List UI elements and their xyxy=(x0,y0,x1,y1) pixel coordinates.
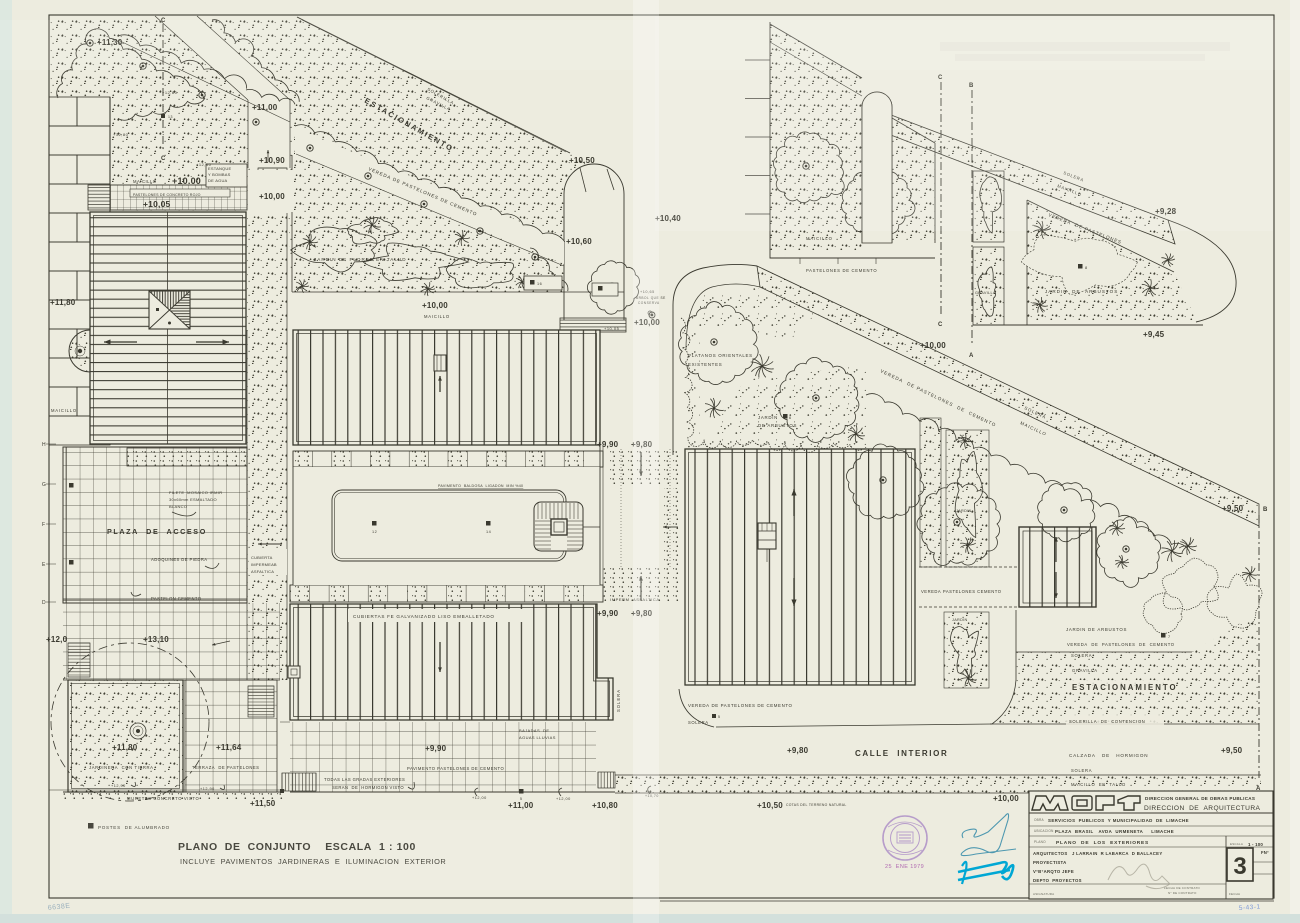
svg-text:16: 16 xyxy=(537,282,542,286)
svg-text:+12,80: +12,80 xyxy=(196,162,212,167)
svg-text:FECHA DE CONTRATO: FECHA DE CONTRATO xyxy=(1164,886,1200,890)
svg-text:SOLERA: SOLERA xyxy=(688,720,709,725)
svg-text:5: 5 xyxy=(520,797,522,801)
svg-text:MAICILLO: MAICILLO xyxy=(133,179,157,184)
svg-text:PLATANOS ORIENTALES: PLATANOS ORIENTALES xyxy=(688,353,753,358)
svg-text:+12,90: +12,90 xyxy=(111,784,126,788)
svg-text:MAICILLO: MAICILLO xyxy=(424,314,450,319)
svg-text:F: F xyxy=(42,522,45,528)
svg-text:+10,05: +10,05 xyxy=(143,199,171,209)
svg-text:G: G xyxy=(42,482,46,488)
svg-text:30x60mm ESMALTADO: 30x60mm ESMALTADO xyxy=(169,497,217,502)
svg-text:3: 3 xyxy=(1233,853,1246,880)
svg-text:+11,00: +11,00 xyxy=(508,801,534,810)
svg-text:+11,80: +11,80 xyxy=(50,298,76,307)
svg-text:+9,80: +9,80 xyxy=(787,746,809,755)
svg-text:SOLERA: SOLERA xyxy=(1071,768,1092,773)
svg-text:+13,10: +13,10 xyxy=(143,635,169,644)
svg-text:IMPERMEAB: IMPERMEAB xyxy=(251,562,277,567)
svg-text:ARQUITECTOS J LARRAIN R LAB: ARQUITECTOS J LARRAIN R LABARCA D BALLAC… xyxy=(1033,851,1163,856)
svg-text:25 ENE 1979: 25 ENE 1979 xyxy=(885,864,924,870)
svg-text:Y BOMBAS: Y BOMBAS xyxy=(208,172,231,177)
svg-text:EXISTENTES: EXISTENTES xyxy=(688,362,722,367)
svg-text:JARDIN: JARDIN xyxy=(758,415,778,420)
svg-text:JARDIN DE FLORES EN TALUD: JARDIN DE FLORES EN TALUD xyxy=(314,257,407,262)
svg-text:PAVIMENTO PASTELONES DE CEMENT: PAVIMENTO PASTELONES DE CEMENTO xyxy=(407,766,504,771)
svg-text:BAJADAS DE: BAJADAS DE xyxy=(519,728,549,733)
svg-text:+12,80: +12,80 xyxy=(113,132,129,137)
svg-text:+11,50: +11,50 xyxy=(250,799,276,808)
svg-text:+12,0: +12,0 xyxy=(46,635,68,644)
svg-text:PLAZA BRASIL AVDA URMENETA: PLAZA BRASIL AVDA URMENETA LIMACHE xyxy=(1055,829,1174,834)
svg-text:ESCALA: ESCALA xyxy=(1230,842,1243,846)
svg-text:SOLERA: SOLERA xyxy=(616,689,621,712)
svg-text:TERRAZA DE PASTELONES: TERRAZA DE PASTELONES xyxy=(192,765,259,770)
svg-text:C: C xyxy=(938,322,943,328)
svg-text:+12,00: +12,00 xyxy=(556,797,571,801)
svg-text:D: D xyxy=(42,600,46,606)
svg-text:SOLERA: SOLERA xyxy=(1071,653,1092,658)
svg-text:SERAN DE HORMIGON VISTO: SERAN DE HORMIGON VISTO xyxy=(332,785,404,790)
svg-text:+10,80: +10,80 xyxy=(592,801,618,810)
svg-text:BLANCO: BLANCO xyxy=(169,504,187,509)
svg-text:AGUAS LLUVIAS: AGUAS LLUVIAS xyxy=(519,735,556,740)
svg-text:MAICILLO: MAICILLO xyxy=(806,236,833,241)
svg-text:ESTACIONAMIENTO: ESTACIONAMIENTO xyxy=(1072,683,1178,692)
svg-text:JARDIN: JARDIN xyxy=(952,618,968,622)
svg-text:JARDINERA CON TIERRA: JARDINERA CON TIERRA xyxy=(89,765,153,770)
svg-text:+10.00: +10.00 xyxy=(172,176,201,186)
svg-text:UBICACION: UBICACION xyxy=(1034,829,1054,833)
svg-text:N° DE CONTRATO: N° DE CONTRATO xyxy=(1168,891,1197,895)
svg-text:MURETES CONCRETO VISTO: MURETES CONCRETO VISTO xyxy=(127,796,200,801)
svg-text:+12,60: +12,60 xyxy=(162,90,178,95)
svg-text:GRAVILLA: GRAVILLA xyxy=(1072,668,1098,673)
svg-text:6: 6 xyxy=(789,416,792,420)
svg-text:+11,64: +11,64 xyxy=(216,743,242,752)
svg-text:PASTELONES DE CONCRETO ROJO: PASTELONES DE CONCRETO ROJO xyxy=(133,193,201,197)
svg-text:GRAVILLA: GRAVILLA xyxy=(975,291,996,295)
svg-text:ESTANQUE: ESTANQUE xyxy=(208,166,231,171)
svg-text:FILETE MOSAICO IRMIR: FILETE MOSAICO IRMIR xyxy=(169,490,222,495)
svg-text:12: 12 xyxy=(372,530,377,534)
svg-text:PAVIMENTO BALDOSA LIGADON M: PAVIMENTO BALDOSA LIGADON MIN %40 xyxy=(438,484,523,488)
svg-text:PLAZA DE ACCESO: PLAZA DE ACCESO xyxy=(107,527,207,536)
svg-text:CUBIERTAS FE GALVANIZADO LISO: CUBIERTAS FE GALVANIZADO LISO EMBALLETAD… xyxy=(353,614,495,619)
svg-text:JARDIN DE ARBUSTOS: JARDIN DE ARBUSTOS xyxy=(1045,289,1118,294)
svg-text:COTAS DEL TERRENO NATURAL: COTAS DEL TERRENO NATURAL xyxy=(786,803,847,807)
svg-text:PROYECTISTA: PROYECTISTA xyxy=(1033,860,1067,865)
svg-text:OBRA: OBRA xyxy=(1034,818,1045,822)
svg-text:FN°: FN° xyxy=(1261,850,1269,855)
svg-text:14: 14 xyxy=(486,530,491,534)
svg-text:SERVICIOS PUBLICOS Y MUNICIP: SERVICIOS PUBLICOS Y MUNICIPALIDAD DE LI… xyxy=(1048,818,1189,823)
svg-text:ASFALTICA: ASFALTICA xyxy=(251,569,274,574)
svg-text:PASTELONES DE CEMENTO: PASTELONES DE CEMENTO xyxy=(806,268,877,273)
svg-text:H: H xyxy=(42,442,46,448)
svg-text:+10,50: +10,50 xyxy=(757,801,783,810)
svg-text:+9,50: +9,50 xyxy=(1222,504,1244,513)
svg-text:7: 7 xyxy=(1168,635,1171,639)
svg-text:V°B°ARQTO JEFE: V°B°ARQTO JEFE xyxy=(1033,869,1074,874)
svg-text:+9,90: +9,90 xyxy=(597,440,619,449)
svg-text:SOLERILLA DE CONTENCION: SOLERILLA DE CONTENCION xyxy=(1069,719,1145,724)
svg-text:DE AGUA: DE AGUA xyxy=(208,178,228,183)
svg-text:+9,90: +9,90 xyxy=(597,609,619,618)
svg-text:+10,00: +10,00 xyxy=(422,301,448,310)
svg-text:+10,05: +10,05 xyxy=(604,326,620,331)
svg-text:VEREDA PASTELONES CEMENTO: VEREDA PASTELONES CEMENTO xyxy=(921,589,1002,594)
svg-text:DE ARBUSTOS: DE ARBUSTOS xyxy=(758,423,797,428)
svg-text:+12,90: +12,90 xyxy=(200,787,215,791)
svg-text:13: 13 xyxy=(168,115,173,119)
svg-text:8: 8 xyxy=(1085,266,1088,270)
svg-text:CALZADA DE HORMIGON: CALZADA DE HORMIGON xyxy=(1069,753,1148,758)
svg-text:PLANO DE LOS EXTERIORES: PLANO DE LOS EXTERIORES xyxy=(1056,840,1149,846)
svg-text:+10,00: +10,00 xyxy=(259,192,285,201)
svg-text:VEREDA DE PASTELONES DE CE: VEREDA DE PASTELONES DE CEMENTO xyxy=(1067,642,1175,647)
svg-text:JARDIN: JARDIN xyxy=(956,509,972,513)
svg-text:+9,45: +9,45 xyxy=(1143,330,1165,339)
svg-text:1 - 100: 1 - 100 xyxy=(1248,842,1263,847)
svg-text:JARDIN DE ARBUSTOS: JARDIN DE ARBUSTOS xyxy=(1066,627,1127,632)
svg-text:C: C xyxy=(161,156,166,162)
svg-text:+11,80: +11,80 xyxy=(112,743,138,752)
svg-text:PASTELON CEMENTO: PASTELON CEMENTO xyxy=(151,596,202,601)
svg-text:A: A xyxy=(969,353,974,359)
svg-text:CALLE INTERIOR: CALLE INTERIOR xyxy=(855,749,948,758)
svg-text:DIRECCION DE ARQUITECTURA: DIRECCION DE ARQUITECTURA xyxy=(1144,805,1261,812)
svg-text:DEPTO PROYECTOS: DEPTO PROYECTOS xyxy=(1033,878,1082,883)
svg-text:VEREDA DE PASTELONES DE CEMENT: VEREDA DE PASTELONES DE CEMENTO xyxy=(688,703,793,708)
svg-text:DIRECCION GENERAL DE OBRAS PUB: DIRECCION GENERAL DE OBRAS PUBLICAS xyxy=(1145,796,1255,801)
svg-text:MAICILLO: MAICILLO xyxy=(51,408,77,413)
svg-text:ADOQUINES DE PIEDRA: ADOQUINES DE PIEDRA xyxy=(151,557,207,562)
svg-text:+11,00: +11,00 xyxy=(252,103,278,112)
svg-text:B: B xyxy=(1263,507,1268,513)
svg-text:+12,00: +12,00 xyxy=(472,796,487,800)
svg-text:+10,50: +10,50 xyxy=(569,156,595,165)
svg-text:+9,90: +9,90 xyxy=(425,744,447,753)
svg-text:+10,60: +10,60 xyxy=(566,237,592,246)
svg-text:FECHA: FECHA xyxy=(1229,892,1240,896)
svg-text:TODAS LAS GRADAS EXTERIORES: TODAS LAS GRADAS EXTERIORES xyxy=(324,777,405,782)
svg-text:+10,00: +10,00 xyxy=(993,794,1019,803)
svg-text:+10,90: +10,90 xyxy=(259,156,285,165)
svg-text:+9,50: +9,50 xyxy=(1221,746,1243,755)
svg-text:PLANO: PLANO xyxy=(1034,840,1046,844)
svg-text:CUBIERTA: CUBIERTA xyxy=(251,555,273,560)
svg-text:ASIGNATURA: ASIGNATURA xyxy=(1033,892,1054,896)
svg-text:5: 5 xyxy=(718,715,720,719)
